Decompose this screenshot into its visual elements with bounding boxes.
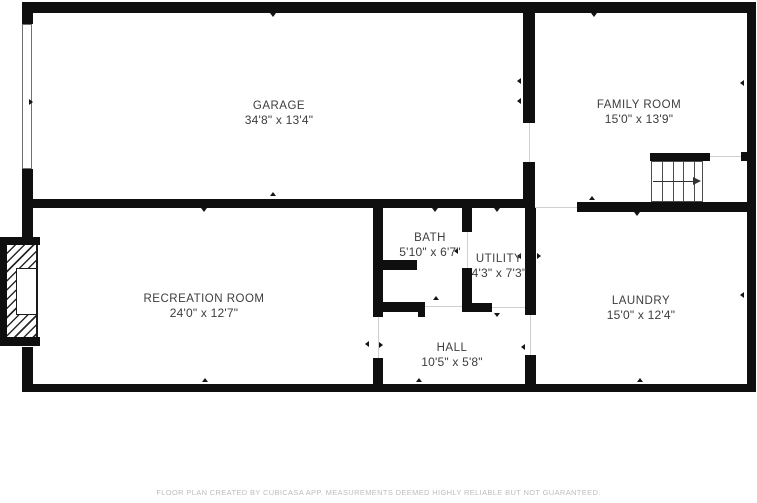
- wall-exterior-top: [22, 2, 756, 13]
- wall-bath-hall-nub: [418, 312, 425, 317]
- door-marker-icon: [202, 378, 208, 382]
- room-label-recreation-room: RECREATION ROOM 24'0" x 12'7": [143, 292, 264, 320]
- door-marker-icon: [201, 208, 207, 212]
- door-marker-icon: [432, 208, 438, 212]
- wall-bath-hall: [373, 302, 425, 312]
- wall-garage-recreation: [33, 199, 535, 208]
- door-marker-icon: [270, 13, 276, 17]
- room-label-laundry: LAUNDRY 15'0" x 12'4": [607, 294, 675, 322]
- fireplace-wall-top: [0, 237, 40, 245]
- door-marker-icon: [740, 292, 744, 298]
- fireplace-wall-left: [0, 245, 7, 337]
- wall-exterior-left-lower: [22, 347, 33, 384]
- door-marker-icon: [29, 99, 33, 105]
- wall-exterior-right: [747, 2, 756, 392]
- door-marker-icon: [591, 13, 597, 17]
- door-marker-icon: [379, 342, 383, 348]
- door-threshold: [535, 207, 577, 208]
- room-label-garage: GARAGE 34'8" x 13'4": [245, 99, 313, 127]
- wall-exterior-left-upper: [22, 13, 33, 24]
- wall-hall-laundry-lower: [525, 355, 536, 384]
- wall-garage-family-upper: [523, 13, 535, 123]
- room-dimensions: 15'0" x 13'9": [597, 112, 681, 126]
- door-marker-icon: [433, 296, 439, 300]
- floor-plan: GARAGE 34'8" x 13'4" FAMILY ROOM 15'0" x…: [0, 0, 757, 503]
- door-marker-icon: [416, 378, 422, 382]
- wall-utility-hall: [462, 303, 492, 312]
- wall-bath-utility-upper: [462, 208, 472, 232]
- door-marker-icon: [270, 192, 276, 196]
- room-dimensions: 10'5" x 5'8": [421, 355, 483, 369]
- room-name: LAUNDRY: [607, 294, 675, 308]
- door-threshold: [425, 306, 462, 307]
- room-dimensions: 24'0" x 12'7": [143, 306, 264, 320]
- room-name: GARAGE: [245, 99, 313, 113]
- door-marker-icon: [637, 378, 643, 382]
- room-label-family-room: FAMILY ROOM 15'0" x 13'9": [597, 98, 681, 126]
- garage-door: [22, 24, 32, 169]
- door-threshold: [378, 317, 379, 358]
- door-marker-icon: [517, 78, 521, 84]
- fireplace-wall-bottom: [0, 337, 40, 346]
- door-marker-icon: [494, 313, 500, 317]
- disclaimer-text: FLOOR PLAN CREATED BY CUBICASA APP. MEAS…: [0, 488, 757, 497]
- wall-stair-top: [650, 153, 710, 161]
- door-marker-icon: [634, 212, 640, 216]
- wall-stair-nub: [741, 152, 747, 161]
- door-marker-icon: [521, 344, 525, 350]
- room-dimensions: 4'3" x 7'3": [472, 266, 527, 280]
- door-marker-icon: [365, 341, 369, 347]
- stair-direction-arrow-icon: [693, 177, 701, 185]
- room-label-bath: BATH 5'10" x 6'7": [399, 231, 461, 259]
- wall-exterior-bottom: [22, 384, 756, 392]
- wall-garage-family-lower: [523, 162, 535, 208]
- room-label-hall: HALL 10'5" x 5'8": [421, 341, 483, 369]
- room-name: BATH: [399, 231, 461, 245]
- door-threshold: [467, 232, 468, 268]
- stair-direction-line: [653, 181, 694, 182]
- wall-exterior-left-middle: [22, 169, 33, 245]
- room-label-utility: UTILITY 4'3" x 7'3": [472, 252, 527, 280]
- fireplace-firebox: [16, 268, 37, 315]
- room-name: UTILITY: [472, 252, 527, 266]
- wall-recreation-hall-lower: [373, 358, 383, 384]
- room-name: RECREATION ROOM: [143, 292, 264, 306]
- door-marker-icon: [494, 208, 500, 212]
- door-threshold: [492, 307, 525, 308]
- door-threshold: [529, 123, 530, 162]
- door-marker-icon: [589, 196, 595, 200]
- room-dimensions: 15'0" x 12'4": [607, 308, 675, 322]
- wall-bath-stub: [373, 260, 417, 270]
- room-name: HALL: [421, 341, 483, 355]
- door-marker-icon: [517, 98, 521, 104]
- room-name: FAMILY ROOM: [597, 98, 681, 112]
- wall-family-laundry: [577, 202, 747, 212]
- wall-hall-laundry-upper: [525, 208, 536, 315]
- door-marker-icon: [537, 253, 541, 259]
- room-dimensions: 34'8" x 13'4": [245, 113, 313, 127]
- room-dimensions: 5'10" x 6'7": [399, 245, 461, 259]
- door-threshold: [710, 156, 741, 157]
- door-threshold: [530, 315, 531, 355]
- door-marker-icon: [740, 80, 744, 86]
